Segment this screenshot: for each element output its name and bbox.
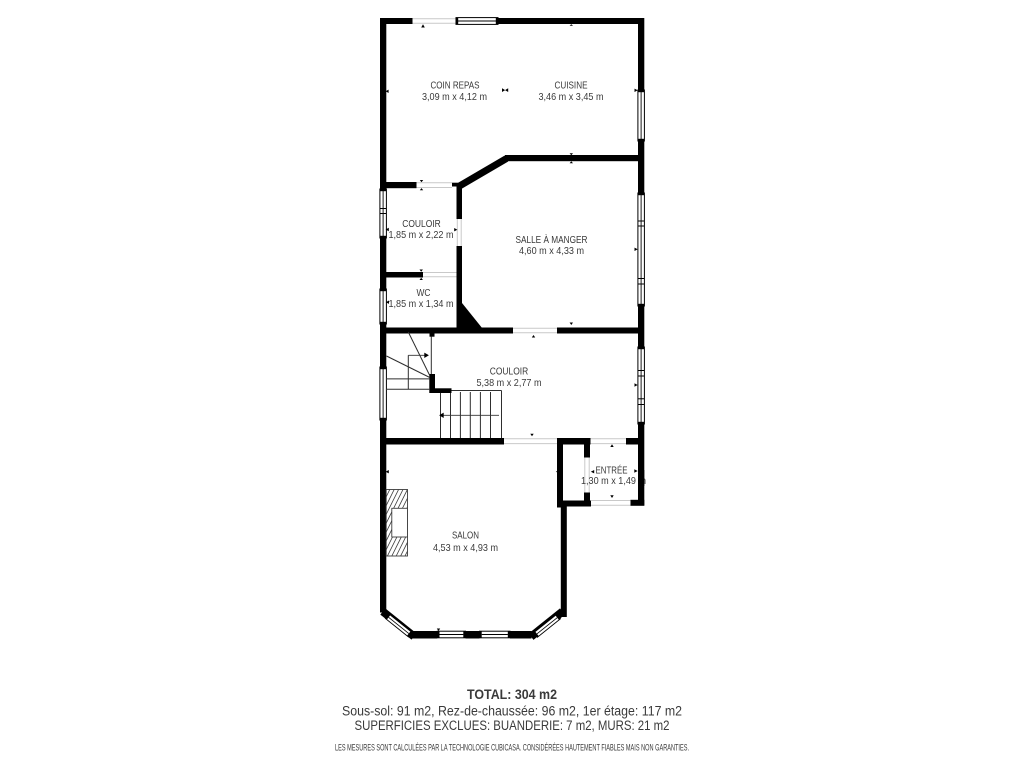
svg-text:3,09 m x 4,12 m: 3,09 m x 4,12 m [422, 92, 487, 103]
svg-text:1,85 m x 1,34 m: 1,85 m x 1,34 m [389, 299, 454, 310]
svg-text:COULOIR: COULOIR [402, 219, 441, 230]
svg-text:LES MESURES SONT CALCULÉES PAR: LES MESURES SONT CALCULÉES PAR LA TECHNO… [335, 743, 689, 753]
svg-text:ENTRÉE: ENTRÉE [596, 463, 628, 476]
svg-text:SUPERFICIES EXCLUES: BUANDERIE: SUPERFICIES EXCLUES: BUANDERIE: 7 m2, MU… [355, 718, 670, 733]
svg-text:4,53 m x 4,93 m: 4,53 m x 4,93 m [433, 543, 498, 554]
svg-text:WC: WC [417, 288, 431, 299]
svg-text:CUISINE: CUISINE [555, 81, 588, 92]
svg-text:COIN REPAS: COIN REPAS [431, 81, 480, 92]
svg-text:SALLE À MANGER: SALLE À MANGER [516, 233, 588, 246]
svg-text:3,46 m x 3,45 m: 3,46 m x 3,45 m [539, 92, 604, 103]
svg-text:Sous-sol: 91 m2, Rez-de-chauss: Sous-sol: 91 m2, Rez-de-chaussée: 96 m2,… [342, 704, 682, 719]
svg-text:1,85 m x 2,22 m: 1,85 m x 2,22 m [389, 230, 454, 241]
svg-text:5,38 m x 2,77 m: 5,38 m x 2,77 m [477, 378, 542, 389]
svg-text:COULOIR: COULOIR [490, 367, 529, 378]
svg-text:TOTAL: 304 m2: TOTAL: 304 m2 [467, 687, 557, 702]
svg-text:4,60 m x 4,33 m: 4,60 m x 4,33 m [519, 246, 584, 257]
svg-text:1,30 m x 1,49 m: 1,30 m x 1,49 m [581, 476, 646, 487]
svg-text:SALON: SALON [452, 530, 479, 541]
